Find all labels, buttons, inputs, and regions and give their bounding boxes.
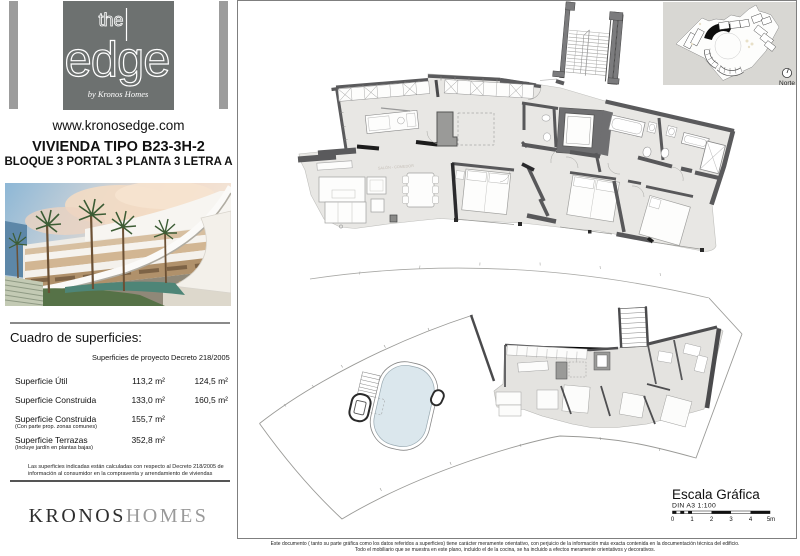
svg-text:Norte: Norte — [779, 80, 795, 87]
svg-text:1: 1 — [690, 517, 694, 523]
svg-text:5m: 5m — [767, 517, 775, 523]
svg-text:2: 2 — [710, 517, 714, 523]
svg-text:DIN A3 1:100: DIN A3 1:100 — [672, 503, 716, 510]
svg-text:4: 4 — [749, 517, 753, 523]
svg-text:3: 3 — [729, 517, 733, 523]
svg-text:Escala Gráfica: Escala Gráfica — [672, 487, 760, 502]
svg-text:0: 0 — [671, 517, 675, 523]
